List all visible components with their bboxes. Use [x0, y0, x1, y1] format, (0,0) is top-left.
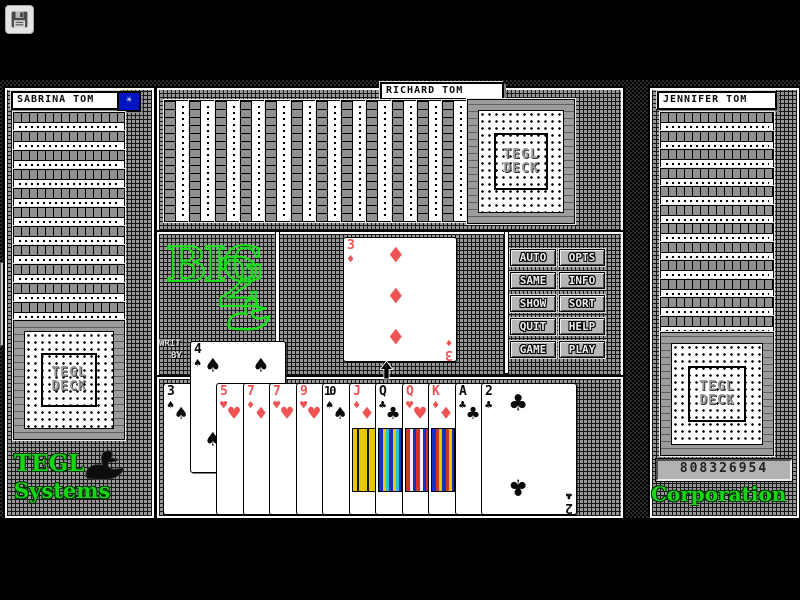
card-back-edge	[164, 100, 190, 222]
card-back-pattern: TEGLDECK	[671, 343, 763, 445]
card-pip: ♦	[440, 401, 452, 425]
card-pip: ♠	[194, 357, 201, 369]
menu-button-sort[interactable]: SORT	[559, 295, 605, 312]
card-pip: ♦	[255, 401, 267, 425]
face-card-art	[378, 428, 402, 492]
card-back-label: TEGLDECK	[494, 133, 548, 190]
player-name-top: RICHARD TOM	[380, 82, 504, 100]
swan-icon	[70, 448, 138, 482]
brand-corporation: Corporation	[651, 482, 786, 506]
card-pip: ♥	[308, 401, 320, 425]
card-pip: ♣	[510, 392, 526, 416]
card-pip: ♦	[388, 285, 404, 309]
card-rank: 3	[347, 239, 355, 252]
card-back-pattern: TEGLDECK	[478, 110, 564, 213]
card-back-edge	[660, 279, 774, 299]
card-back-pattern: TEGLDECK	[24, 331, 114, 429]
card-pip: ♠	[326, 399, 333, 411]
card-pip: ♥	[414, 401, 426, 425]
card-rank: J	[353, 385, 361, 398]
card-back-edge	[13, 283, 125, 303]
card-back-edge	[316, 100, 342, 222]
player-name-right: JENNIFER TOM	[657, 91, 777, 110]
face-card-art	[352, 428, 376, 492]
card-rank: K	[432, 385, 440, 398]
card-pip: ♦	[432, 399, 439, 411]
card-pip: ♥	[406, 399, 413, 411]
card-back-edge	[660, 242, 774, 262]
face-card-art	[405, 428, 429, 492]
card-pip: ♠	[334, 401, 346, 425]
card-pip: ♣	[485, 399, 492, 411]
card-back-edge	[660, 297, 774, 317]
played-card-3-diamonds: 3♦♦♦♦3♦	[343, 237, 457, 362]
card-back-edge	[660, 149, 774, 169]
card-pip: ♠	[254, 354, 268, 378]
menu-button-play[interactable]: PLAY	[559, 341, 605, 358]
card-pip: ♣	[510, 474, 526, 498]
card-back-edge	[660, 223, 774, 243]
card-back-edge	[13, 112, 125, 132]
card-back-edge	[265, 100, 291, 222]
card-pip: ♣	[467, 401, 479, 425]
card-pip: ♥	[273, 399, 280, 411]
card-rank: 2	[485, 385, 493, 398]
card-pip: ♠	[175, 401, 187, 425]
face-card-art	[431, 428, 455, 492]
card-pip: ♥	[300, 399, 307, 411]
card-back-edge	[215, 100, 241, 222]
card-pip: ♣	[379, 399, 386, 411]
card-pip: ♦	[361, 401, 373, 425]
card-back-edge	[240, 100, 266, 222]
swan-icon	[222, 296, 274, 332]
card-pip: ♥	[281, 401, 293, 425]
panel-divider	[505, 232, 508, 373]
menu-button-opts[interactable]: OPTS	[559, 249, 605, 266]
card-back-edge	[392, 100, 418, 222]
card-back-edge	[417, 100, 443, 222]
card-pip: ♣	[459, 399, 466, 411]
card-back-edge	[660, 131, 774, 151]
floppy-disk-icon	[10, 10, 29, 29]
card-pip: ♦	[353, 399, 360, 411]
card-back-edge	[13, 245, 125, 265]
card-corner-rotated: 3♦	[445, 336, 453, 360]
card-rank: 3	[167, 385, 175, 398]
card-pip: ♠	[206, 354, 220, 378]
card-back-edge	[660, 168, 774, 188]
menu-button-grid: AUTOOPTSSAMEINFOSHOWSORTQUITHELPGAMEPLAY	[510, 249, 605, 358]
card-back-edge	[13, 226, 125, 246]
card-pip: ♦	[247, 399, 254, 411]
card-back-edge	[13, 131, 125, 151]
card-back: TEGLDECK	[13, 320, 125, 440]
card-rank: 7	[273, 385, 281, 398]
card-back-edge	[660, 112, 774, 132]
menu-button-show[interactable]: SHOW	[510, 295, 556, 312]
card-back-edge	[13, 207, 125, 227]
mouse-cursor-icon	[380, 361, 394, 380]
menu-button-same[interactable]: SAME	[510, 272, 556, 289]
menu-button-help[interactable]: HELP	[559, 318, 605, 335]
card-back-edge	[660, 186, 774, 206]
card-back-edge	[13, 188, 125, 208]
card-back-edge	[13, 302, 125, 322]
card-pip: ♥	[220, 399, 227, 411]
score-counter: 808326954	[656, 459, 792, 481]
hand-card-2-clubs[interactable]: 2♣♣♣2♣	[481, 383, 577, 515]
card-back-label: TEGLDECK	[41, 353, 97, 407]
card-back-edge	[442, 100, 468, 222]
card-back-edge	[189, 100, 215, 222]
menu-button-auto[interactable]: AUTO	[510, 249, 556, 266]
card-rank: 7	[247, 385, 255, 398]
card-back-edge	[660, 260, 774, 280]
card-back: TEGLDECK	[467, 99, 575, 224]
big2-game-screen: { "toolbar": { "save_icon": "floppy-disk…	[0, 0, 800, 600]
card-back-edge	[291, 100, 317, 222]
card-pip: ♦	[388, 326, 404, 350]
card-rank: Q	[406, 385, 414, 398]
card-back-edge	[13, 264, 125, 284]
card-rank: A	[459, 385, 467, 398]
player-name-left: SABRINA TOM	[11, 91, 121, 110]
card-back-label: TEGLDECK	[688, 366, 746, 422]
card-corner-rotated: 2♣	[565, 489, 573, 513]
turn-star-button[interactable]: ✳	[117, 91, 141, 112]
menu-button-info[interactable]: INFO	[559, 272, 605, 289]
card-pip: ♣	[387, 401, 399, 425]
card-pip: ♦	[347, 253, 354, 265]
card-back-edge	[341, 100, 367, 222]
save-button[interactable]	[5, 5, 34, 34]
card-back-edge	[660, 205, 774, 225]
card-pip: ♠	[167, 399, 174, 411]
card-rank: 5	[220, 385, 228, 398]
card-rank: 9	[300, 385, 308, 398]
brand-systems: Systems	[14, 478, 110, 503]
card-pip: ♦	[388, 244, 404, 268]
card-pip: ♥	[228, 401, 240, 425]
card-back-edge	[366, 100, 392, 222]
credit-text: WRIT BY	[159, 338, 182, 362]
menu-button-game[interactable]: GAME	[510, 341, 556, 358]
card-back-edge	[13, 150, 125, 170]
card-back: TEGLDECK	[660, 332, 774, 456]
card-back-edge	[13, 169, 125, 189]
card-rank: 4	[194, 343, 202, 356]
menu-button-quit[interactable]: QUIT	[510, 318, 556, 335]
card-rank: 10	[324, 385, 334, 398]
star-icon: ✳	[126, 94, 132, 105]
card-rank: Q	[379, 385, 387, 398]
